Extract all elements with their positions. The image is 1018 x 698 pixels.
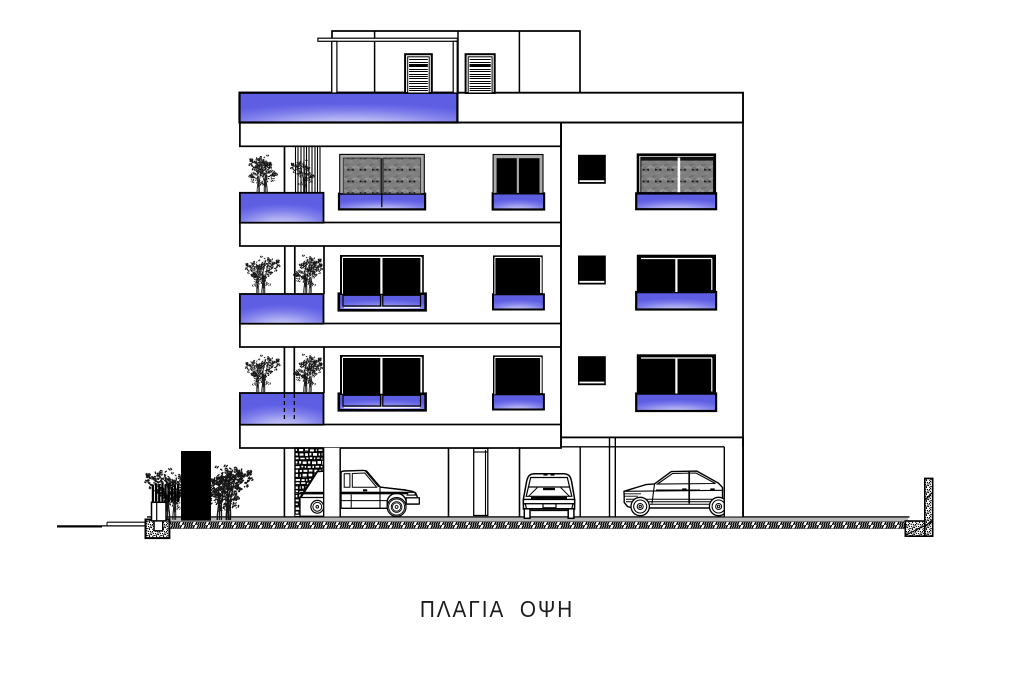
svg-text:ΠΛΑΓΙΑ ΟΨΗ: ΠΛΑΓΙΑ ΟΨΗ [420,596,574,622]
